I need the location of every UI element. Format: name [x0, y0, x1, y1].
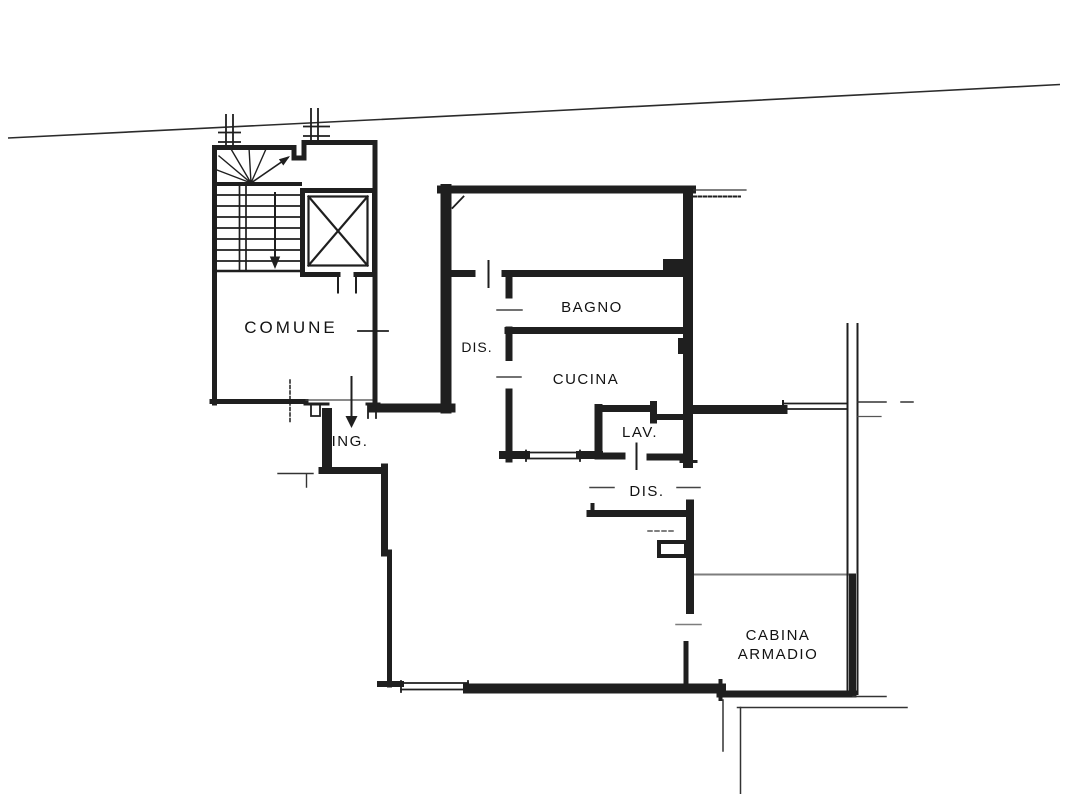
- elevator: [303, 191, 375, 293]
- cabina-walls: [676, 504, 848, 625]
- room-label-bagno: BAGNO: [561, 299, 623, 316]
- site-boundary-line: [8, 85, 1060, 139]
- chimney-marker-2: [303, 108, 330, 141]
- room-label-lav: LAV.: [622, 424, 658, 441]
- chimney-marker-1: [218, 114, 241, 147]
- room-label-cabina-armadio-line2: ARMADIO: [738, 646, 819, 663]
- room-label-cabina-armadio-line1: CABINA: [746, 627, 811, 644]
- room-label-dis1: DIS.: [461, 339, 492, 355]
- room-label-dis2: DIS.: [629, 483, 664, 500]
- site-lines-bottom-right: [723, 700, 907, 794]
- floor-plan-svg: COMUNE DIS. BAGNO CUCINA LAV. DIS. ING. …: [0, 0, 1065, 794]
- stair-up-arrowhead: [279, 156, 290, 166]
- entrance-arrow: [346, 376, 358, 428]
- entrance-door: [305, 400, 379, 418]
- ing-walls: [278, 413, 390, 685]
- room-label-comune: COMUNE: [244, 318, 338, 337]
- floor-plan-page: COMUNE DIS. BAGNO CUCINA LAV. DIS. ING. …: [0, 0, 1065, 794]
- stair-down-arrow: [270, 192, 280, 269]
- staircase: [217, 148, 300, 272]
- room-label-cucina: CUCINA: [553, 371, 620, 388]
- hallway-walls: [451, 261, 522, 459]
- room-label-ing: ING.: [332, 433, 369, 450]
- apartment-perimeter-walls: [441, 190, 746, 464]
